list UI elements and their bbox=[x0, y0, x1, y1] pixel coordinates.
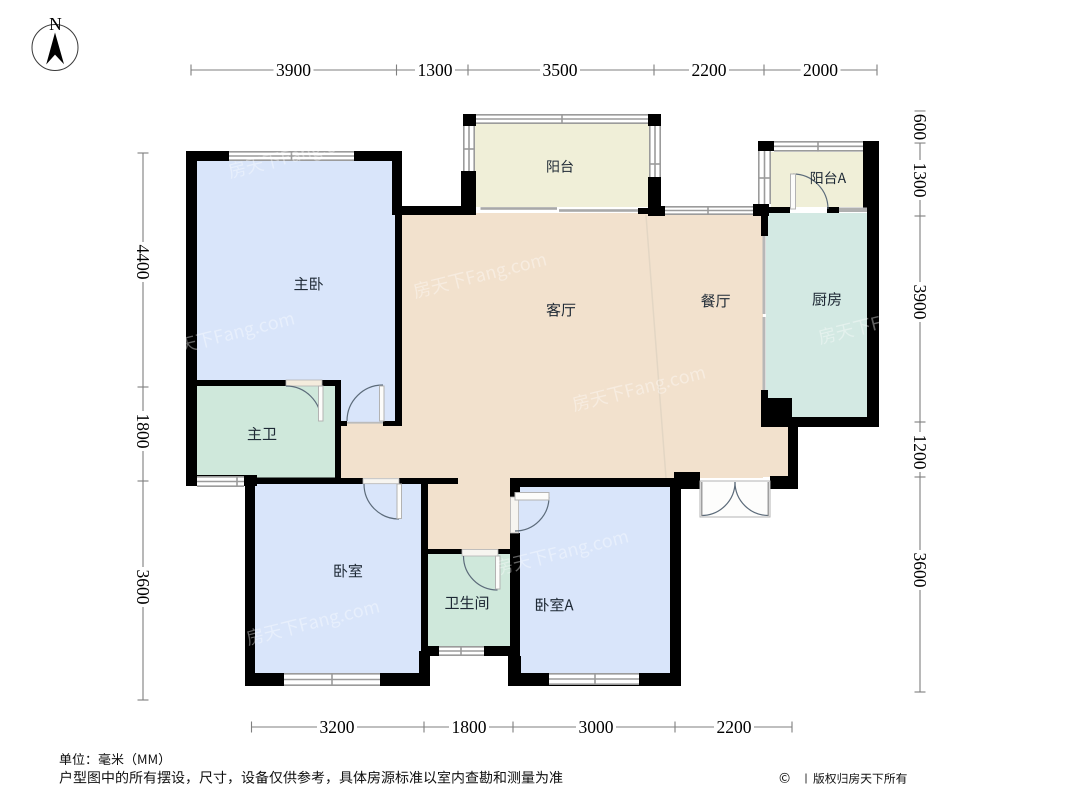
svg-text:1300: 1300 bbox=[418, 60, 453, 80]
svg-text:1800: 1800 bbox=[133, 414, 153, 449]
svg-text:3600: 3600 bbox=[133, 570, 153, 605]
svg-text:600: 600 bbox=[910, 114, 930, 141]
svg-text:2000: 2000 bbox=[803, 60, 838, 80]
svg-text:1200: 1200 bbox=[910, 435, 930, 470]
svg-text:2200: 2200 bbox=[717, 717, 752, 737]
svg-text:3900: 3900 bbox=[276, 60, 311, 80]
svg-text:3600: 3600 bbox=[910, 553, 930, 588]
svg-text:2200: 2200 bbox=[692, 60, 727, 80]
svg-text:4400: 4400 bbox=[133, 245, 153, 280]
svg-text:3000: 3000 bbox=[579, 717, 614, 737]
svg-text:3500: 3500 bbox=[543, 60, 578, 80]
svg-text:3900: 3900 bbox=[910, 285, 930, 320]
svg-text:1300: 1300 bbox=[910, 163, 930, 198]
svg-text:1800: 1800 bbox=[452, 717, 487, 737]
svg-text:3200: 3200 bbox=[320, 717, 355, 737]
svg-text:N: N bbox=[49, 14, 62, 34]
